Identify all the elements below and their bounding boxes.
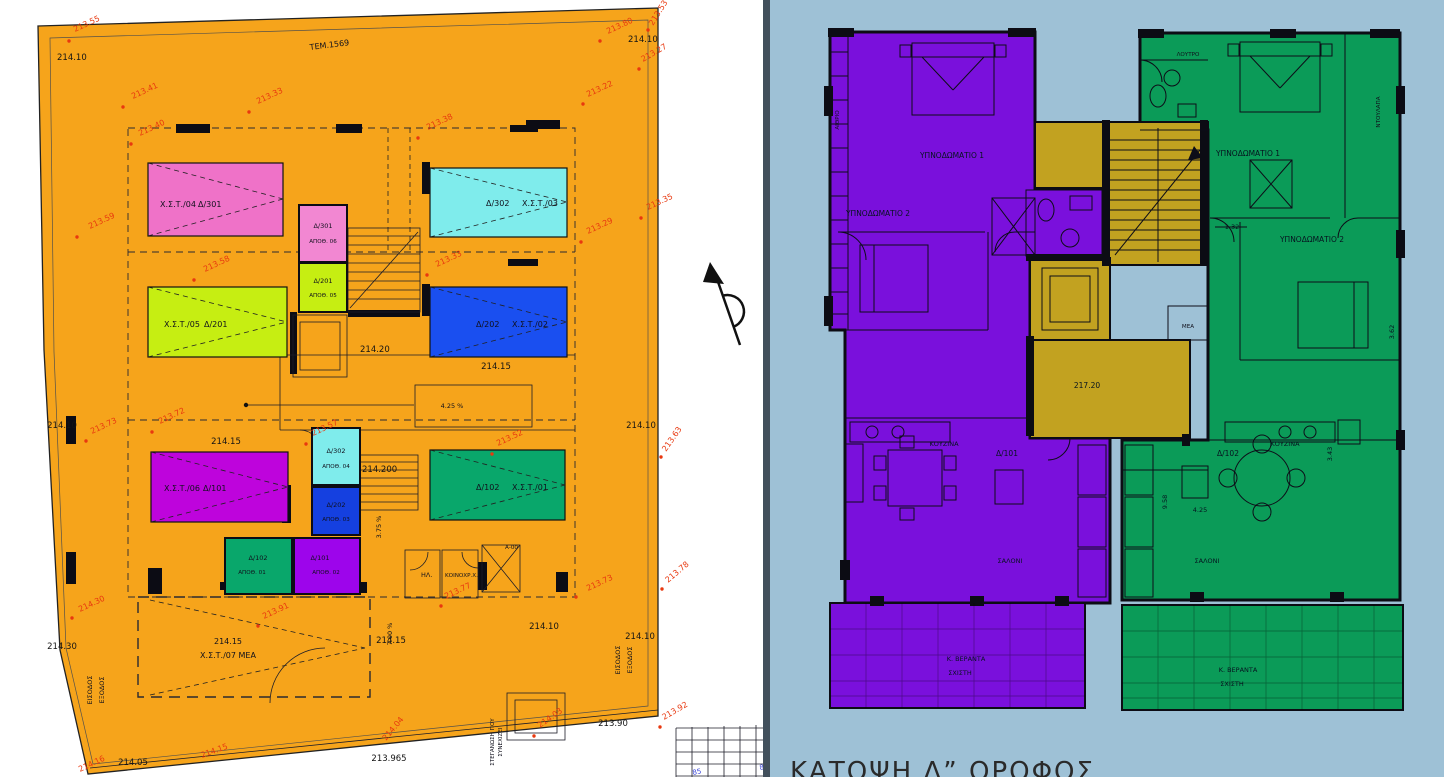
room-label-bedroom2: ΥΠΝΟΔΩΜΑΤΙΟ 2 (845, 209, 910, 218)
dimension: 3.43 (1326, 447, 1334, 461)
entrance-label: ΕΙΣΟΔΟΣ (614, 646, 622, 675)
parking-label: Χ.Σ.Τ./04 (160, 200, 196, 209)
storeroom: Δ/101 ΑΠΟΘ. 02 (294, 538, 360, 594)
level-mark: 214.10 (57, 53, 87, 63)
parking-label: Χ.Σ.Τ./05 (164, 320, 200, 329)
communal-room-label: ΚΟΙΝΟΧΡ.Χ. (445, 573, 478, 579)
spot-elevation: 213.63 (660, 425, 683, 453)
parking-space: Χ.Σ.Τ./05 Δ/201 (148, 287, 287, 357)
level-mark: 214.30 (47, 642, 77, 652)
storeroom-name: ΑΠΟΘ. 06 (309, 239, 337, 245)
parking-label: Χ.Σ.Τ./01 (512, 483, 548, 492)
room-label-living: ΣΑΛΟΝΙ (998, 557, 1023, 565)
electrical-room-label: ΗΛ. (421, 571, 432, 579)
site-parking-plan: ΤΕΜ.1569 (0, 0, 770, 777)
apartment-code: Δ/101 (996, 449, 1018, 458)
storeroom-code: Δ/101 (310, 554, 329, 562)
core-level-mark: 217.20 (1074, 381, 1100, 390)
survey-grid-table: 85 85 (676, 725, 770, 777)
storeroom-name: ΑΠΟΘ. 01 (238, 570, 266, 576)
level-mark: 214.10 (628, 35, 658, 45)
survey-mark: 85 (692, 767, 702, 777)
parking-label: 214.15 (214, 637, 242, 646)
storeroom: Δ/202 ΑΠΟΘ. 03 (312, 487, 360, 535)
dimension: 3.62 (1388, 325, 1396, 339)
level-mark: 214.05 (118, 758, 148, 768)
level-mark: 214.20 (360, 345, 390, 355)
level-mark: 213.965 (371, 754, 406, 764)
veranda-label: ΣΧΙΣΤΗ (948, 669, 972, 677)
level-mark: 214.15 (211, 437, 241, 447)
spot-elevation: 213.92 (661, 700, 690, 722)
parking-label: Δ/101 (203, 484, 226, 493)
storeroom: Δ/302 ΑΠΟΘ. 04 (312, 428, 360, 485)
ramp-label-main: 4.25 % (441, 402, 464, 410)
parking-label: Δ/201 (204, 320, 227, 329)
parking-label: Χ.Σ.Τ./07 ΜΕΑ (200, 651, 256, 660)
storeroom-code: Δ/102 (248, 554, 267, 562)
closet-label: ΝΤΟΥΛΑΠΑ (1376, 96, 1382, 127)
parking-label: Δ/302 (486, 199, 509, 208)
parking-label: Χ.Σ.Τ./03 (522, 199, 558, 208)
veranda-label: Κ. ΒΕΡΑΝΤΑ (1219, 666, 1258, 674)
storeroom: Δ/102 ΑΠΟΘ. 01 (225, 538, 292, 594)
atrium-label: ΑΙΘΡΙΟ (835, 110, 841, 130)
parking-label: Χ.Σ.Τ./06 (164, 484, 200, 493)
mea-label: ΜΕΑ (1182, 324, 1194, 330)
storeroom-name: ΑΠΟΘ. 02 (312, 570, 340, 576)
storeroom-code: Δ/201 (313, 277, 332, 285)
north-arrow-icon (703, 262, 744, 345)
note-line: ΣΥΝΕΧΙΖΕΙ (498, 727, 504, 757)
parking-space: Χ.Σ.Τ./04 Δ/301 (148, 163, 283, 236)
level-mark: 214.10 (626, 421, 656, 431)
dimension: 4.25 (1193, 506, 1207, 514)
parking-space: Δ/102 Χ.Σ.Τ./01 (430, 450, 565, 520)
parking-space: Χ.Σ.Τ./06 Δ/101 (151, 452, 288, 522)
room-label-kitchen: ΚΟΥΖΙΝΑ (1270, 440, 1300, 448)
floor-plan: ΥΠΝΟΔΩΜΑΤΙΟ 1 ΥΠΝΟΔΩΜΑΤΙΟ 2 ΚΟΥΖΙΝΑ Δ/10… (770, 0, 1444, 777)
level-mark: 214.10 (625, 632, 655, 642)
storeroom-name: ΑΠΟΘ. 04 (322, 464, 350, 470)
parking-space: Δ/202 Χ.Σ.Τ./02 (430, 287, 567, 357)
storeroom-name: ΑΠΟΘ. 03 (322, 517, 350, 523)
storeroom-code: Δ/202 (326, 501, 345, 509)
storeroom-code: Δ/302 (326, 447, 345, 455)
plot-polygon (38, 8, 658, 774)
drawing-stage: ΤΕΜ.1569 (0, 0, 1444, 777)
ramp-label-side: 3.75 % (375, 516, 383, 539)
entrance-label: ΕΞΟΔΟΣ (626, 647, 634, 674)
storeroom-name: ΑΠΟΘ. 05 (309, 293, 337, 299)
ramp-label-street: 7.00 % (386, 623, 394, 646)
plan-title: ΚΑΤΟΨΗ Δ” ΟΡΟΦΟΣ (790, 757, 1095, 777)
storeroom: Δ/301 ΑΠΟΘ. 06 (299, 205, 347, 262)
note-line: ΣΤΕΓΑΝΩΣΗ ΠΟΥ (490, 718, 496, 766)
storeroom-code: Δ/301 (313, 222, 332, 230)
apartment-right-veranda (1122, 605, 1403, 710)
level-mark: 214.10 (529, 622, 559, 632)
level-mark: 214.200 (362, 465, 397, 475)
entrance-label: ΕΞΟΔΟΣ (98, 677, 106, 704)
veranda-label: ΣΧΙΣΤΗ (1220, 680, 1244, 688)
spot-elevation: 213.78 (664, 560, 691, 585)
level-mark: 214.10 (47, 421, 77, 431)
dimension: 9.58 (1161, 495, 1169, 509)
parking-label: Δ/202 (476, 320, 499, 329)
room-label-bedroom1: ΥΠΝΟΔΩΜΑΤΙΟ 1 (919, 151, 984, 160)
entrance-label: ΕΙΣΟΔΟΣ (86, 676, 94, 705)
room-label-bedroom1: ΥΠΝΟΔΩΜΑΤΙΟ 1 (1215, 149, 1280, 158)
storeroom: Δ/201 ΑΠΟΘ. 05 (299, 263, 347, 312)
shaft-tag: Α-00 (505, 545, 518, 551)
parking-label: Δ/301 (198, 200, 221, 209)
room-label-living: ΣΑΛΟΝΙ (1195, 557, 1220, 565)
parking-label: Χ.Σ.Τ./02 (512, 320, 548, 329)
parking-label: Δ/102 (476, 483, 499, 492)
veranda-label: Κ. ΒΕΡΑΝΤΑ (947, 655, 986, 663)
room-label-bedroom2: ΥΠΝΟΔΩΜΑΤΙΟ 2 (1279, 235, 1344, 244)
level-mark: 214.15 (481, 362, 511, 372)
parking-space: Δ/302 Χ.Σ.Τ./03 (430, 168, 567, 237)
room-label-kitchen: ΚΟΥΖΙΝΑ (929, 440, 959, 448)
level-mark: 213.90 (598, 719, 628, 729)
apartment-code: Δ/102 (1217, 449, 1239, 458)
room-label-bathroom: ΛΟΥΤΡΟ (1177, 52, 1200, 58)
